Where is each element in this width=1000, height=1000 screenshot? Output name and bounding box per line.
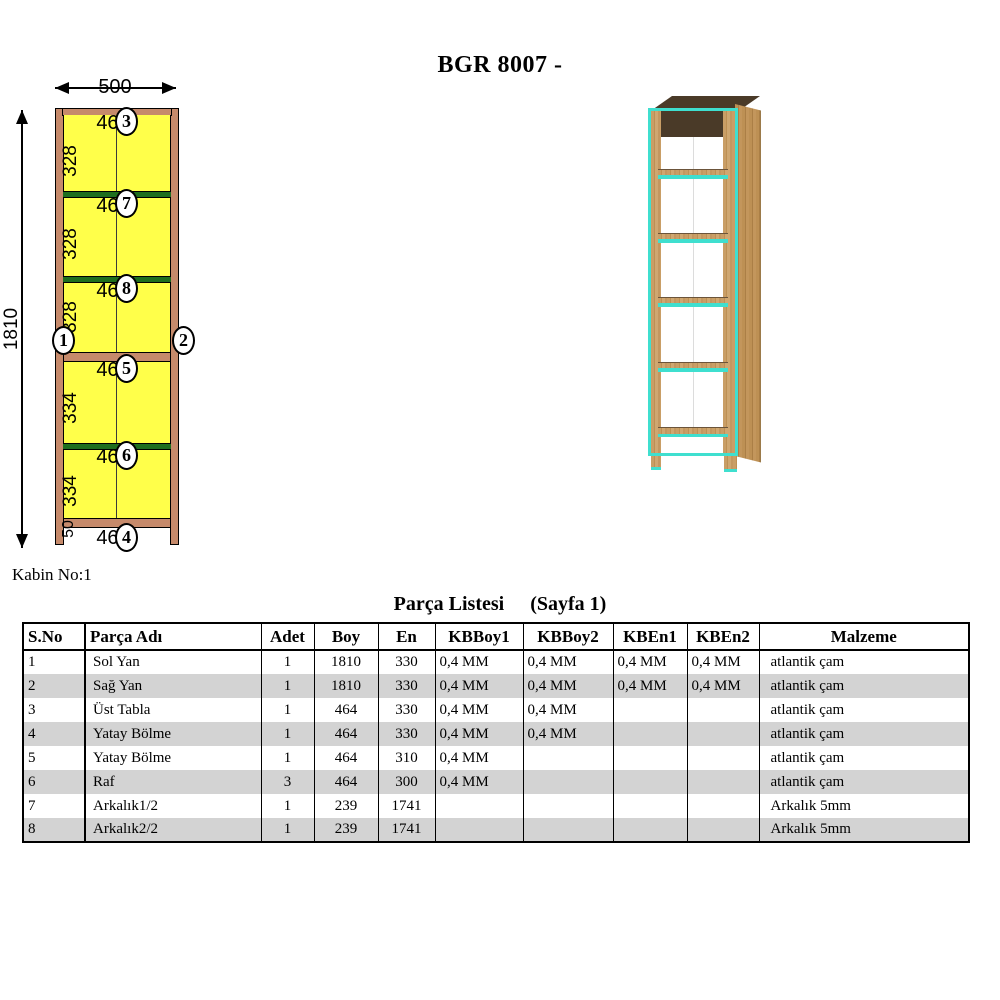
cell-length: 464 <box>314 698 378 722</box>
top-interior-shadow <box>661 111 723 137</box>
arrowhead-right-icon <box>162 82 176 94</box>
cell-kben1 <box>613 818 687 842</box>
cell-kbboy2: 0,4 MM <box>523 674 613 698</box>
cell-length: 464 <box>314 770 378 794</box>
parts-list-title: Parça Listesi(Sayfa 1) <box>0 593 1000 616</box>
col-header-sno: S.No <box>23 623 85 650</box>
cell-kbboy2 <box>523 770 613 794</box>
table-header-row: S.No Parça Adı Adet Boy En KBBoy1 KBBoy2… <box>23 623 969 650</box>
cell-length: 464 <box>314 722 378 746</box>
cell-material: Arkalık 5mm <box>759 794 969 818</box>
cell-sno: 4 <box>23 722 85 746</box>
table-row: 8 Arkalık2/2 1 239 1741 Arkalık 5mm <box>23 818 969 842</box>
cell-kbboy1: 0,4 MM <box>435 722 523 746</box>
part-marker-7: 7 <box>115 189 138 218</box>
arrowhead-up-icon <box>16 110 28 124</box>
arrowhead-down-icon <box>16 534 28 548</box>
table-row: 2 Sağ Yan 1 1810 330 0,4 MM 0,4 MM 0,4 M… <box>23 674 969 698</box>
section-height-label: 328 <box>60 138 82 184</box>
cell-kbboy1: 0,4 MM <box>435 674 523 698</box>
parts-table: S.No Parça Adı Adet Boy En KBBoy1 KBBoy2… <box>22 622 970 843</box>
cell-kbboy1: 0,4 MM <box>435 770 523 794</box>
cell-qty: 1 <box>261 746 314 770</box>
cell-part-name: Sağ Yan <box>85 674 261 698</box>
table-row: 3 Üst Tabla 1 464 330 0,4 MM 0,4 MM atla… <box>23 698 969 722</box>
part-marker-2: 2 <box>172 326 195 355</box>
col-header-kben1: KBEn1 <box>613 623 687 650</box>
front-face <box>648 108 738 456</box>
table-row: 6 Raf 3 464 300 0,4 MM atlantik çam <box>23 770 969 794</box>
right-side-face <box>735 104 761 462</box>
front-right-leg <box>724 456 737 472</box>
cell-kben2 <box>687 794 759 818</box>
cell-length: 1810 <box>314 650 378 674</box>
cell-qty: 1 <box>261 674 314 698</box>
cell-material: atlantik çam <box>759 746 969 770</box>
parts-list-title-page: (Sayfa 1) <box>530 593 606 615</box>
part-marker-5: 5 <box>115 354 138 383</box>
cell-material: Arkalık 5mm <box>759 818 969 842</box>
cell-qty: 1 <box>261 650 314 674</box>
cell-kbboy2: 0,4 MM <box>523 722 613 746</box>
cell-kben1: 0,4 MM <box>613 674 687 698</box>
cell-part-name: Sol Yan <box>85 650 261 674</box>
cell-qty: 1 <box>261 818 314 842</box>
cell-width: 310 <box>378 746 435 770</box>
cell-sno: 1 <box>23 650 85 674</box>
cell-kbboy2: 0,4 MM <box>523 698 613 722</box>
arrowhead-left-icon <box>55 82 69 94</box>
cell-kben2: 0,4 MM <box>687 674 759 698</box>
col-header-parca-adi: Parça Adı <box>85 623 261 650</box>
col-header-malzeme: Malzeme <box>759 623 969 650</box>
cell-kben1 <box>613 722 687 746</box>
cell-width: 300 <box>378 770 435 794</box>
cell-qty: 1 <box>261 722 314 746</box>
cell-part-name: Arkalık1/2 <box>85 794 261 818</box>
cell-kben1: 0,4 MM <box>613 650 687 674</box>
cell-sno: 7 <box>23 794 85 818</box>
parts-list-title-main: Parça Listesi <box>394 593 505 615</box>
cell-kben2 <box>687 770 759 794</box>
section-height-label: 334 <box>60 385 82 431</box>
cell-kben2 <box>687 818 759 842</box>
col-header-kbboy2: KBBoy2 <box>523 623 613 650</box>
cell-width: 330 <box>378 698 435 722</box>
cell-kbboy1 <box>435 794 523 818</box>
col-header-boy: Boy <box>314 623 378 650</box>
cell-qty: 1 <box>261 698 314 722</box>
cell-kben2 <box>687 722 759 746</box>
cell-sno: 5 <box>23 746 85 770</box>
section-height-label: 328 <box>60 221 82 267</box>
back-joint-line <box>693 137 694 427</box>
cell-kbboy1: 0,4 MM <box>435 746 523 770</box>
cell-width: 1741 <box>378 794 435 818</box>
cabinet-technical-drawing: 500 1810 464 3 464 7 464 8 464 5 464 6 4… <box>0 0 230 580</box>
cell-width: 330 <box>378 674 435 698</box>
cell-width: 1741 <box>378 818 435 842</box>
cell-width: 330 <box>378 650 435 674</box>
cell-sno: 8 <box>23 818 85 842</box>
height-dimension-label: 1810 <box>1 299 23 359</box>
left-stile <box>651 111 661 453</box>
col-header-kbboy1: KBBoy1 <box>435 623 523 650</box>
table-row: 5 Yatay Bölme 1 464 310 0,4 MM atlantik … <box>23 746 969 770</box>
cell-kbboy2 <box>523 746 613 770</box>
shelf-front-3 <box>658 297 728 307</box>
cell-kben2 <box>687 746 759 770</box>
cell-part-name: Yatay Bölme <box>85 746 261 770</box>
cell-width: 330 <box>378 722 435 746</box>
cell-material: atlantik çam <box>759 674 969 698</box>
shelf-front-1 <box>658 169 728 179</box>
table-row: 4 Yatay Bölme 1 464 330 0,4 MM 0,4 MM at… <box>23 722 969 746</box>
table-row: 7 Arkalık1/2 1 239 1741 Arkalık 5mm <box>23 794 969 818</box>
cell-kbboy1: 0,4 MM <box>435 650 523 674</box>
cell-part-name: Yatay Bölme <box>85 722 261 746</box>
cell-material: atlantik çam <box>759 722 969 746</box>
cabinet-3d-render <box>648 96 778 486</box>
cell-sno: 2 <box>23 674 85 698</box>
cell-sno: 6 <box>23 770 85 794</box>
cell-length: 1810 <box>314 674 378 698</box>
cell-part-name: Üst Tabla <box>85 698 261 722</box>
cell-length: 239 <box>314 794 378 818</box>
cell-kben1 <box>613 770 687 794</box>
width-dimension-label: 500 <box>85 76 145 99</box>
front-left-leg <box>651 456 661 470</box>
plinth-height-label: 50 <box>60 506 78 552</box>
shelf-front-2 <box>658 233 728 243</box>
col-header-adet: Adet <box>261 623 314 650</box>
part-marker-4: 4 <box>115 523 138 552</box>
cell-kben1 <box>613 794 687 818</box>
cell-kben1 <box>613 746 687 770</box>
shelf-front-4 <box>658 362 728 372</box>
cell-material: atlantik çam <box>759 650 969 674</box>
cell-material: atlantik çam <box>759 698 969 722</box>
bottom-panel-front <box>658 427 728 437</box>
part-marker-6: 6 <box>115 441 138 470</box>
cell-kbboy1: 0,4 MM <box>435 698 523 722</box>
cell-kben1 <box>613 698 687 722</box>
cell-kben2: 0,4 MM <box>687 650 759 674</box>
cell-sno: 3 <box>23 698 85 722</box>
cell-length: 464 <box>314 746 378 770</box>
cell-kbboy1 <box>435 818 523 842</box>
cell-qty: 1 <box>261 794 314 818</box>
cabin-number-label: Kabin No:1 <box>12 565 92 585</box>
cell-material: atlantik çam <box>759 770 969 794</box>
cell-qty: 3 <box>261 770 314 794</box>
cell-part-name: Arkalık2/2 <box>85 818 261 842</box>
col-header-en: En <box>378 623 435 650</box>
cell-part-name: Raf <box>85 770 261 794</box>
cell-kben2 <box>687 698 759 722</box>
part-marker-8: 8 <box>115 274 138 303</box>
part-marker-3: 3 <box>115 107 138 136</box>
right-stile <box>723 111 735 453</box>
table-row: 1 Sol Yan 1 1810 330 0,4 MM 0,4 MM 0,4 M… <box>23 650 969 674</box>
cell-length: 239 <box>314 818 378 842</box>
col-header-kben2: KBEn2 <box>687 623 759 650</box>
part-marker-1: 1 <box>52 326 75 355</box>
cell-kbboy2 <box>523 794 613 818</box>
cell-kbboy2: 0,4 MM <box>523 650 613 674</box>
cell-kbboy2 <box>523 818 613 842</box>
